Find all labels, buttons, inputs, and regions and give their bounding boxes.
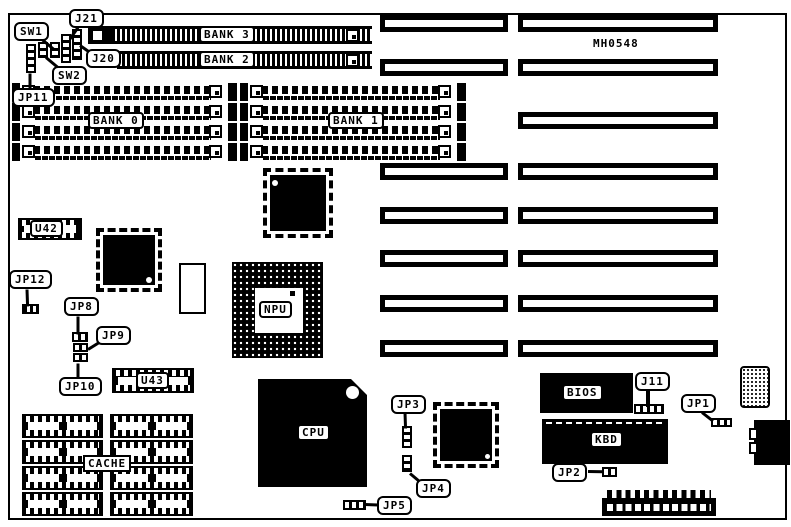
label-cpu: CPU bbox=[297, 424, 330, 441]
callout-sw1: SW1 bbox=[14, 22, 49, 41]
kbd-chip-notch-line bbox=[546, 422, 662, 424]
jumper-jp2 bbox=[602, 467, 617, 477]
connector-tab bbox=[749, 428, 758, 440]
motherboard-diagram: MH0548 SW1 J21 J20 SW2 JP11 BANK 3 BANK … bbox=[0, 0, 791, 527]
label-bank1: BANK 1 bbox=[328, 112, 384, 129]
chipset-qfp-chip bbox=[96, 228, 162, 292]
component-outline bbox=[179, 263, 206, 314]
jumper-jp4 bbox=[402, 455, 412, 472]
isa-slot-segment bbox=[380, 163, 508, 180]
isa-slot-segment bbox=[380, 250, 508, 267]
isa-slot-segment bbox=[380, 59, 508, 76]
jumper-jp3 bbox=[402, 426, 412, 448]
isa-slot-segment bbox=[518, 340, 718, 357]
callout-jp12: JP12 bbox=[9, 270, 52, 289]
jumper-jp5 bbox=[343, 500, 366, 510]
qfp-chip bbox=[263, 168, 333, 238]
board-code-text: MH0548 bbox=[593, 37, 639, 50]
jumper-jp8 bbox=[72, 332, 88, 342]
pin1-marker bbox=[485, 454, 490, 459]
label-u42: U42 bbox=[30, 220, 63, 237]
simm-latch bbox=[346, 54, 359, 67]
isa-slot-segment bbox=[518, 59, 718, 76]
callout-jp3: JP3 bbox=[391, 395, 426, 414]
isa-slot-segment bbox=[518, 295, 718, 312]
callout-jp2: JP2 bbox=[552, 463, 587, 482]
pin1-marker bbox=[146, 277, 152, 283]
callout-jp1: JP1 bbox=[681, 394, 716, 413]
keyboard-connector bbox=[754, 420, 790, 465]
cpu-corner-marker bbox=[346, 386, 359, 399]
callout-sw2: SW2 bbox=[52, 66, 87, 85]
power-connector bbox=[602, 490, 716, 516]
callout-pointer bbox=[588, 470, 603, 473]
callout-jp8: JP8 bbox=[64, 297, 99, 316]
callout-j11: J11 bbox=[635, 372, 670, 391]
simm-socket-row bbox=[240, 143, 466, 161]
isa-slot-segment bbox=[518, 207, 718, 224]
label-bank2: BANK 2 bbox=[199, 51, 255, 68]
jumper-jp10 bbox=[73, 353, 88, 362]
callout-pointer bbox=[404, 412, 408, 428]
isa-slot-segment bbox=[380, 340, 508, 357]
pin1-marker bbox=[290, 291, 295, 296]
jumper-jp9 bbox=[73, 343, 88, 352]
label-cache: CACHE bbox=[83, 455, 131, 472]
callout-pointer bbox=[646, 390, 650, 407]
isa-slot-segment bbox=[380, 207, 508, 224]
isa-slot-segment bbox=[518, 250, 718, 267]
cache-socket bbox=[22, 492, 103, 516]
cache-socket bbox=[110, 492, 193, 516]
label-bank0: BANK 0 bbox=[88, 112, 144, 129]
callout-jp4: JP4 bbox=[416, 479, 451, 498]
jumper-jp12 bbox=[22, 304, 39, 314]
label-npu: NPU bbox=[259, 301, 292, 318]
label-bios: BIOS bbox=[562, 384, 603, 401]
label-kbd: KBD bbox=[590, 431, 623, 448]
callout-j21: J21 bbox=[69, 9, 104, 28]
simm-latch bbox=[346, 29, 359, 42]
label-bank3: BANK 3 bbox=[199, 26, 255, 43]
isa-slot-segment bbox=[518, 112, 718, 129]
callout-j20: J20 bbox=[86, 49, 121, 68]
battery-footprint bbox=[740, 366, 770, 408]
cache-socket bbox=[110, 414, 193, 438]
simm-slot-end bbox=[88, 26, 113, 44]
isa-slot-segment bbox=[518, 163, 718, 180]
callout-pointer bbox=[77, 317, 80, 335]
pin1-marker bbox=[272, 180, 278, 186]
callout-pointer bbox=[26, 289, 30, 306]
isa-slot-segment bbox=[518, 15, 718, 32]
connector-tab bbox=[749, 442, 758, 454]
simm-socket-row bbox=[240, 83, 466, 101]
cache-socket bbox=[22, 414, 103, 438]
isa-slot-segment bbox=[380, 295, 508, 312]
simm-socket-row bbox=[12, 143, 237, 161]
label-u43: U43 bbox=[136, 372, 169, 389]
callout-jp5: JP5 bbox=[377, 496, 412, 515]
callout-jp11: JP11 bbox=[12, 88, 55, 107]
isa-slot-segment bbox=[380, 15, 508, 32]
callout-jp10: JP10 bbox=[59, 377, 102, 396]
jumper-block-jp11 bbox=[26, 44, 36, 73]
callout-jp9: JP9 bbox=[96, 326, 131, 345]
